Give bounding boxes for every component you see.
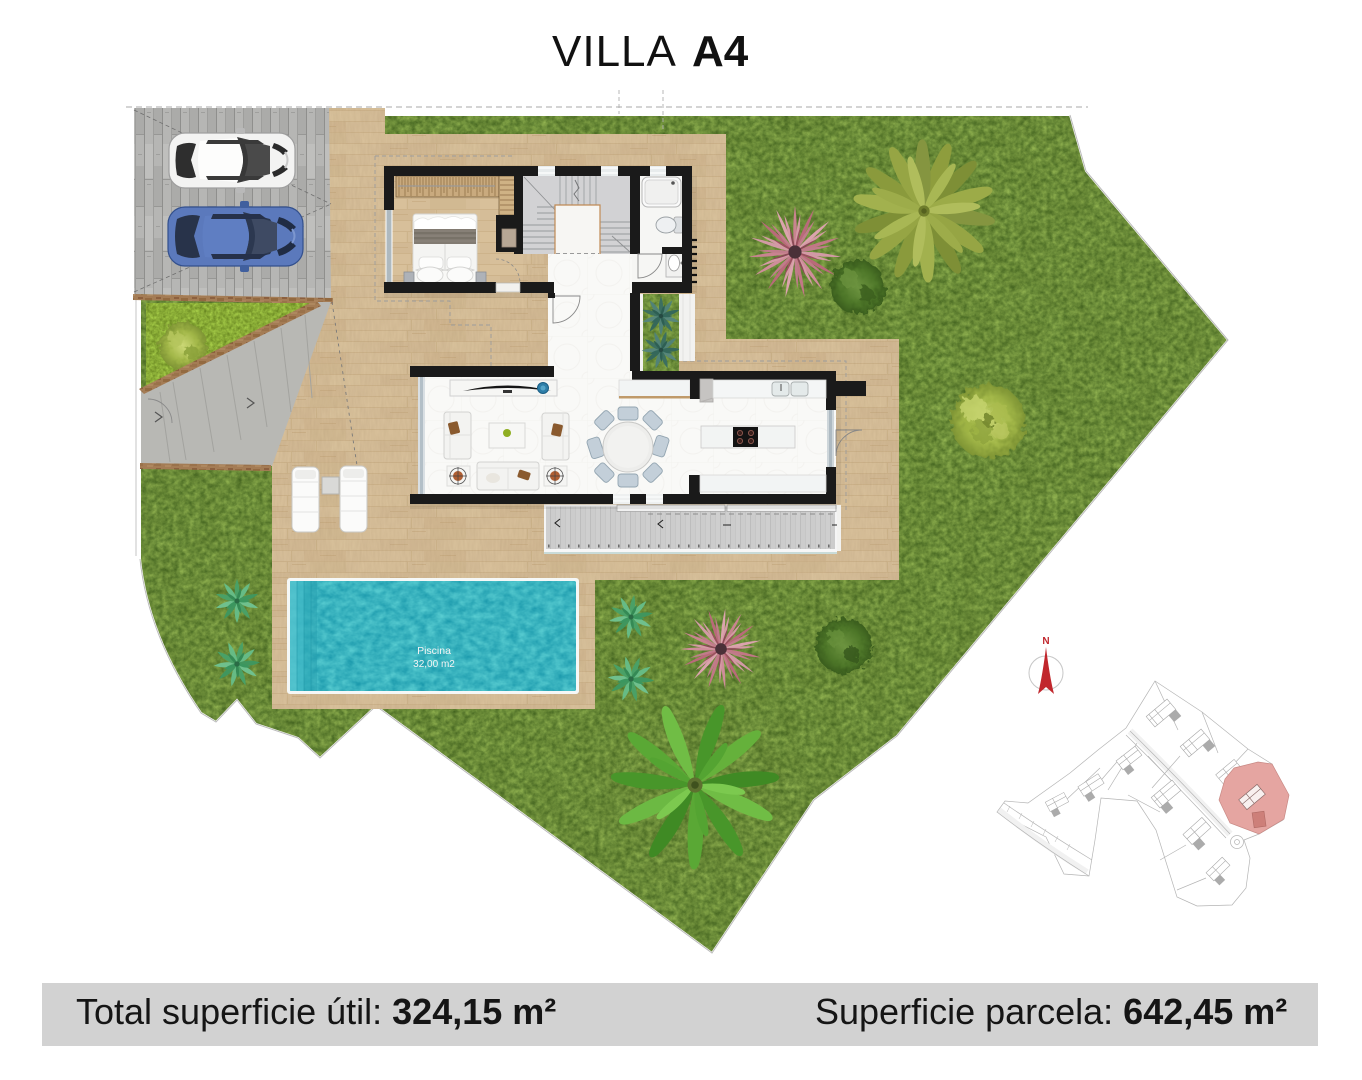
svg-text:N: N [1042, 636, 1049, 647]
svg-text:Total superficie útil: 324,15: Total superficie útil: 324,15 m² [76, 991, 556, 1032]
svg-text:VILLA: VILLA [552, 27, 677, 76]
svg-text:32,00 m2: 32,00 m2 [413, 659, 455, 670]
svg-text:Piscina: Piscina [417, 645, 451, 657]
svg-text:Superficie parcela: 642,45 m²: Superficie parcela: 642,45 m² [815, 991, 1287, 1032]
svg-text:A4: A4 [692, 27, 749, 76]
